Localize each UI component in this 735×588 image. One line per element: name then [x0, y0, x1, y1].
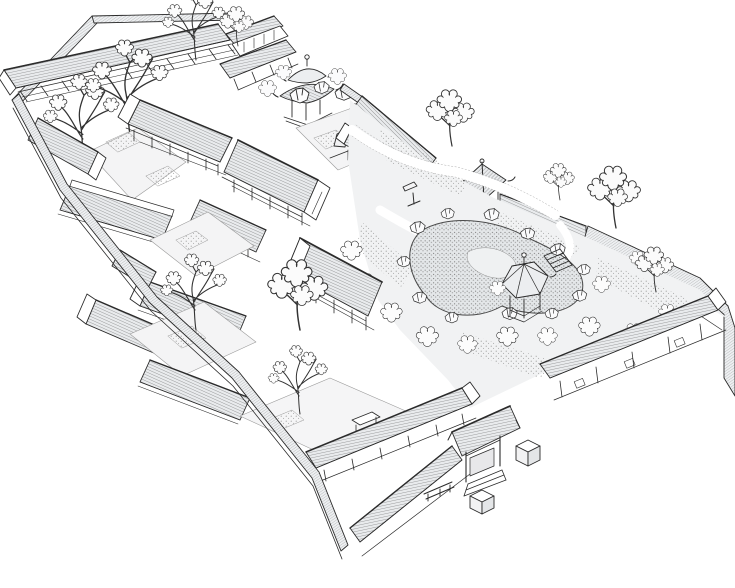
garden-tree: [588, 166, 641, 228]
siheyuan-drawing: Hand-drawn aerial perspective ink illust…: [0, 0, 735, 588]
illustration-page: Hand-drawn aerial perspective ink illust…: [0, 0, 735, 588]
rear-gallery: [0, 24, 238, 102]
hall-south-court1: [58, 180, 174, 244]
garden-tree: [543, 163, 574, 200]
central-hall-1: [222, 140, 330, 226]
gate-row-left: [350, 446, 470, 556]
garden-tree: [426, 90, 474, 146]
